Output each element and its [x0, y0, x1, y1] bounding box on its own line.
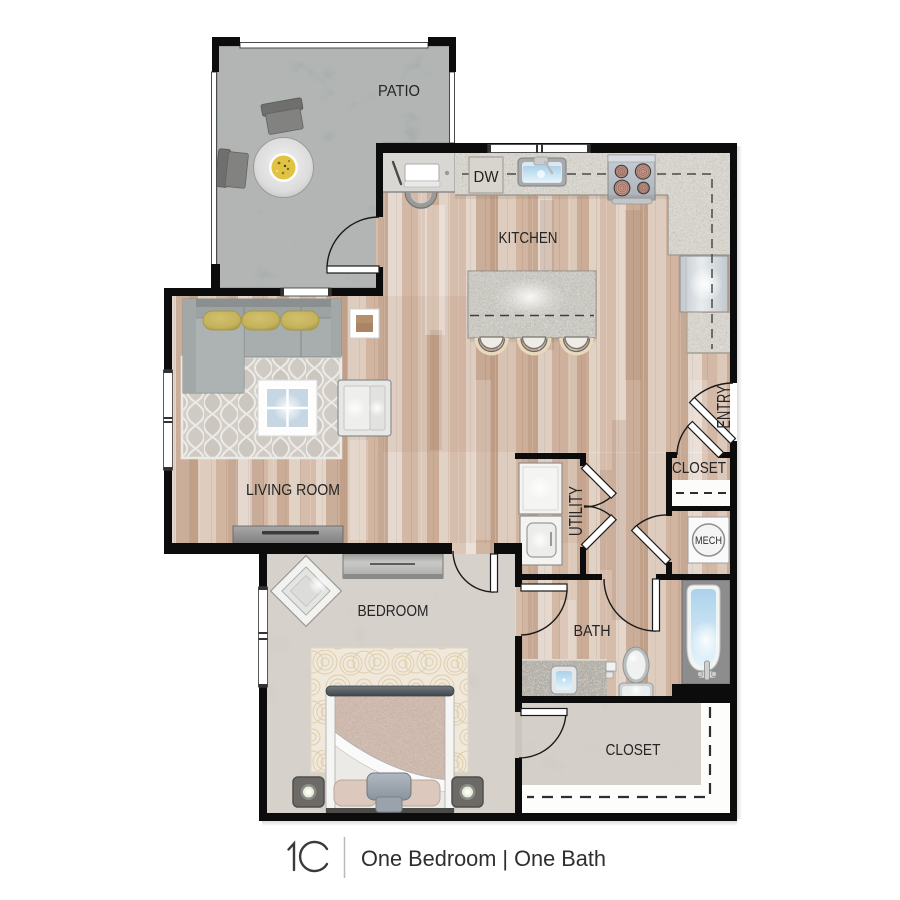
svg-text:PATIO: PATIO: [378, 83, 420, 100]
svg-text:ENTRY: ENTRY: [714, 386, 734, 429]
svg-text:One Bedroom | One Bath: One Bedroom | One Bath: [361, 846, 606, 871]
svg-text:DW: DW: [474, 169, 499, 186]
svg-text:LIVING ROOM: LIVING ROOM: [246, 482, 340, 499]
svg-text:CLOSET: CLOSET: [672, 460, 726, 477]
svg-text:UTILITY: UTILITY: [566, 486, 586, 536]
svg-text:MECH: MECH: [695, 535, 722, 547]
svg-text:KITCHEN: KITCHEN: [499, 230, 558, 247]
svg-text:CLOSET: CLOSET: [606, 742, 661, 759]
svg-text:BATH: BATH: [574, 623, 611, 640]
svg-text:BEDROOM: BEDROOM: [358, 603, 429, 620]
